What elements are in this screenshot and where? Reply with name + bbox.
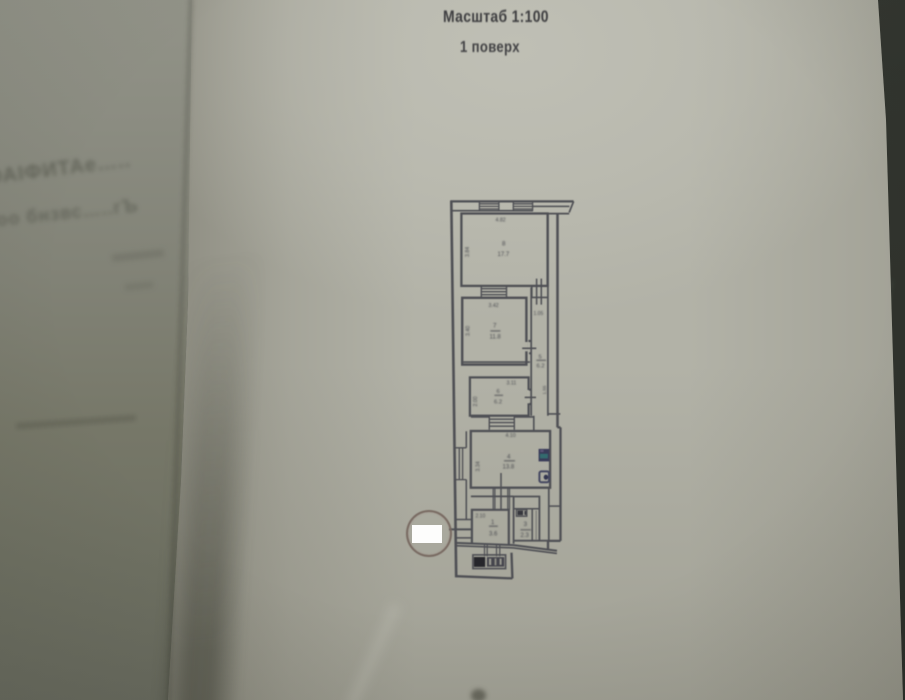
svg-text:2.00: 2.00 [473, 396, 479, 406]
svg-text:3.40: 3.40 [466, 326, 472, 336]
svg-text:7: 7 [493, 323, 497, 330]
svg-text:3.34: 3.34 [476, 461, 482, 471]
svg-text:6.2: 6.2 [494, 400, 502, 406]
svg-text:4: 4 [507, 454, 511, 461]
svg-text:11.8: 11.8 [490, 335, 502, 341]
svg-text:8: 8 [502, 241, 506, 248]
svg-text:13.8: 13.8 [503, 465, 515, 471]
svg-text:3.42: 3.42 [489, 303, 499, 309]
svg-text:3.6: 3.6 [489, 532, 498, 538]
svg-text:2.3: 2.3 [521, 533, 530, 539]
svg-text:3: 3 [524, 521, 528, 528]
svg-text:6.2: 6.2 [537, 364, 545, 370]
svg-text:4.10: 4.10 [506, 433, 516, 439]
svg-text:1.05: 1.05 [534, 311, 544, 317]
svg-text:4.82: 4.82 [496, 218, 506, 224]
svg-text:6: 6 [497, 389, 500, 395]
svg-text:2.10: 2.10 [476, 514, 486, 520]
svg-text:3.11: 3.11 [507, 381, 517, 387]
svg-text:5: 5 [539, 355, 542, 361]
svg-text:1: 1 [491, 520, 495, 526]
svg-text:1.55: 1.55 [542, 385, 547, 394]
svg-text:3.84: 3.84 [465, 247, 471, 257]
svg-text:17.7: 17.7 [498, 252, 510, 258]
